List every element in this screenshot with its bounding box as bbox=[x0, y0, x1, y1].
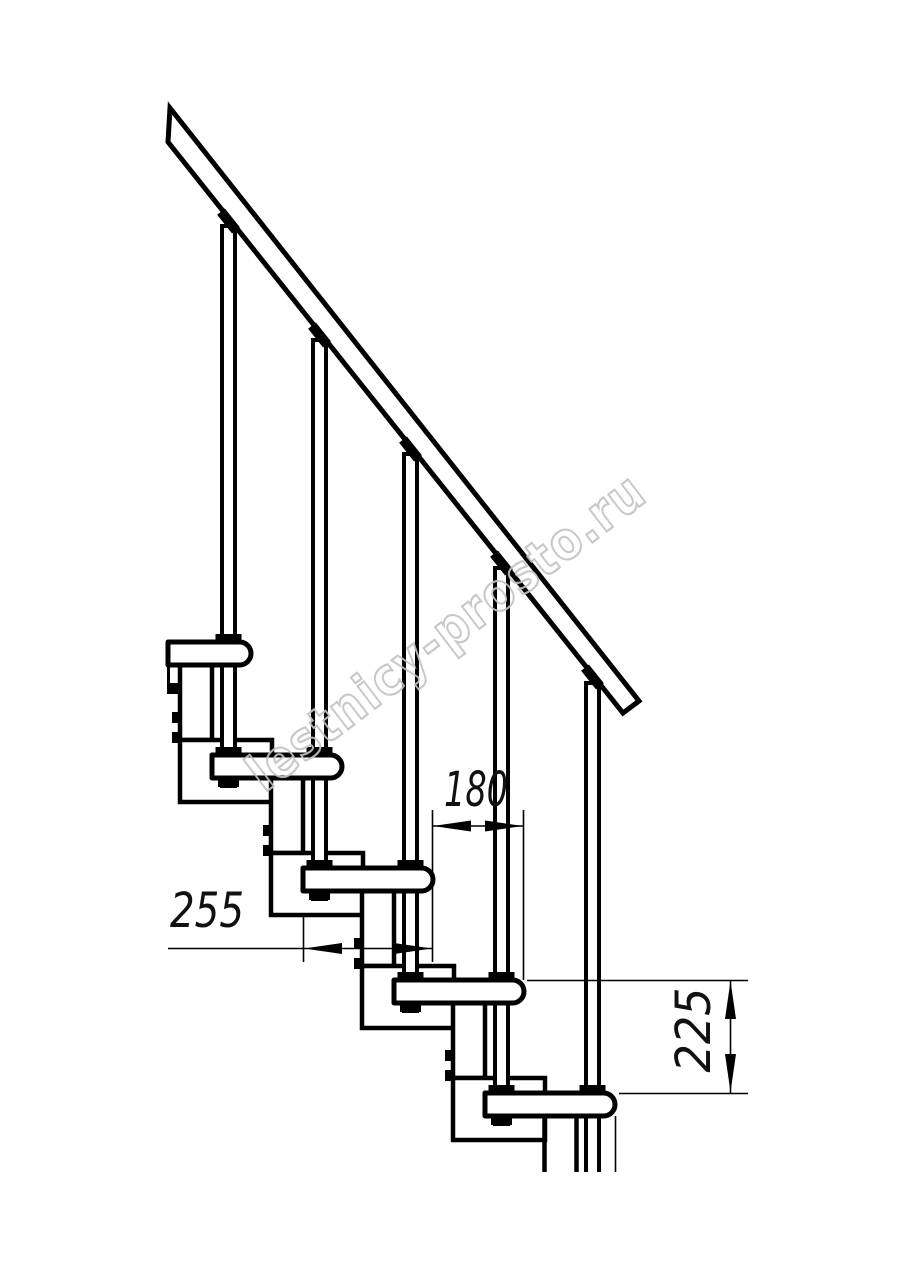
arrow-up-icon bbox=[725, 981, 736, 1019]
baluster-4 bbox=[495, 568, 508, 1124]
tread-1 bbox=[168, 642, 251, 665]
baluster-1 bbox=[222, 226, 235, 786]
bottom-cut-mask bbox=[425, 1172, 725, 1280]
arrow-left-icon bbox=[433, 821, 471, 832]
balusters bbox=[222, 226, 599, 1176]
dimension-tread-depth-label: 255 bbox=[170, 883, 244, 939]
arrow-down-icon bbox=[725, 1054, 736, 1092]
drawing-canvas: 180 255 225 lestnicy-prosto.ru bbox=[0, 0, 914, 1280]
arrow-left-icon bbox=[304, 943, 342, 954]
dimension-run-label: 180 bbox=[444, 762, 508, 818]
tread-5 bbox=[485, 1093, 615, 1116]
baluster-2 bbox=[313, 340, 326, 899]
baluster-3 bbox=[404, 454, 417, 1011]
staircase-drawing: 180 255 225 lestnicy-prosto.ru bbox=[0, 0, 914, 1280]
tread-4 bbox=[394, 980, 524, 1003]
tread-3 bbox=[303, 868, 433, 891]
dimension-rise-label: 225 bbox=[666, 988, 722, 1073]
cut-edge-connector bbox=[168, 683, 181, 694]
stair-module-5 bbox=[545, 1116, 577, 1176]
